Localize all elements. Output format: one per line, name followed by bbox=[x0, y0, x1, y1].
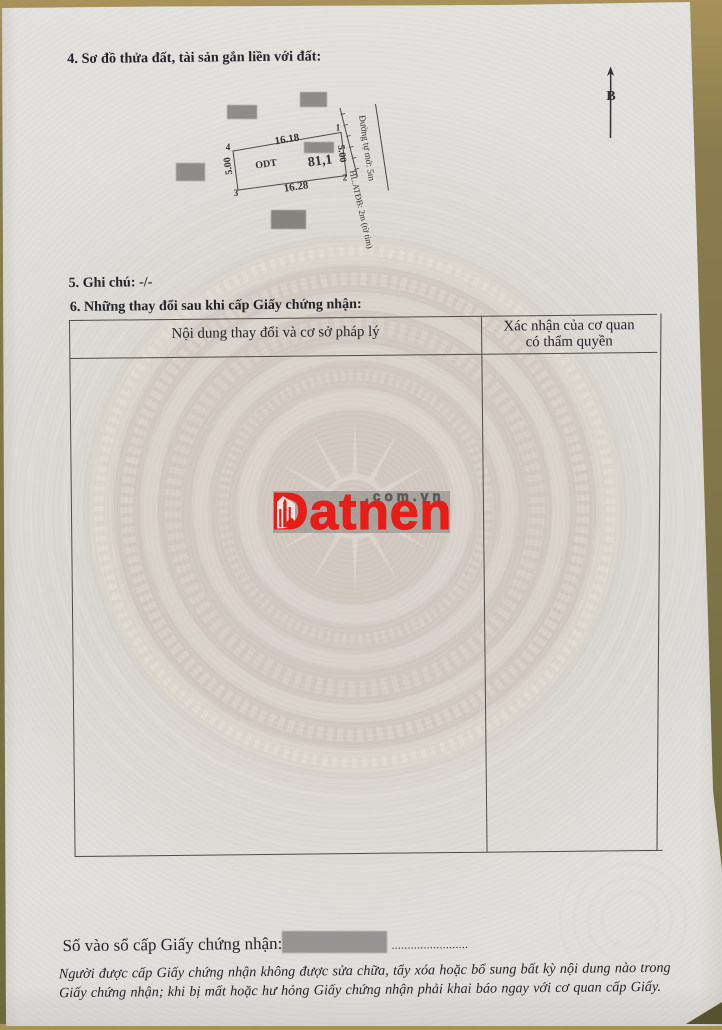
svg-text:16.28: 16.28 bbox=[283, 179, 310, 194]
svg-text:ODT: ODT bbox=[255, 157, 278, 171]
svg-text:B: B bbox=[606, 89, 615, 104]
svg-text:HL.ATĐB: 2m (từ tim): HL.ATĐB: 2m (từ tim) bbox=[348, 169, 376, 249]
svg-text:4: 4 bbox=[226, 142, 231, 152]
svg-text:5.00: 5.00 bbox=[335, 144, 348, 163]
svg-text:5.00: 5.00 bbox=[222, 157, 235, 176]
svg-text:Đường tự mở: 5m: Đường tự mở: 5m bbox=[357, 114, 377, 181]
svg-text:16.18: 16.18 bbox=[274, 131, 301, 147]
svg-text:2: 2 bbox=[343, 173, 348, 183]
svg-text:81,1: 81,1 bbox=[307, 152, 333, 170]
svg-text:1: 1 bbox=[336, 123, 341, 133]
svg-text:3: 3 bbox=[234, 188, 239, 198]
